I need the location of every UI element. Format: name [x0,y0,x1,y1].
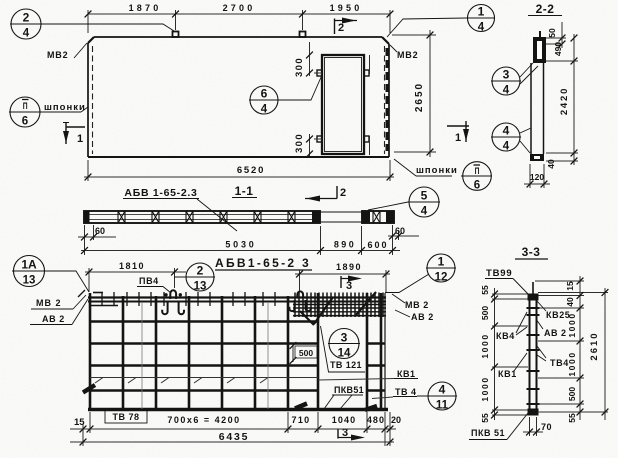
svg-text:4: 4 [261,104,268,116]
svg-text:3: 3 [346,280,352,292]
svg-text:ТВ99: ТВ99 [486,268,512,279]
svg-text:14: 14 [338,348,351,360]
svg-text:4: 4 [503,124,510,138]
svg-text:2: 2 [338,22,344,34]
svg-text:2420: 2420 [559,87,570,115]
svg-text:11: 11 [436,400,449,412]
svg-text:шпонки: шпонки [44,102,86,113]
svg-text:1950: 1950 [330,3,363,13]
svg-text:40: 40 [546,159,556,169]
svg-text:5: 5 [421,189,428,203]
svg-text:4: 4 [503,141,510,153]
svg-text:АБВ1-65-2 3: АБВ1-65-2 3 [215,256,311,270]
svg-text:1: 1 [478,5,485,19]
svg-text:1-1: 1-1 [235,184,254,198]
svg-text:АВ 2: АВ 2 [42,314,65,324]
svg-text:710: 710 [292,415,311,425]
svg-text:МВ 2: МВ 2 [36,298,62,308]
svg-text:1810: 1810 [119,261,145,271]
svg-text:АВ 2: АВ 2 [544,328,567,338]
svg-text:АБВ 1-65-2.3: АБВ 1-65-2.3 [124,187,197,199]
svg-text:55: 55 [480,413,490,423]
svg-text:60: 60 [395,226,405,236]
svg-text:1: 1 [77,133,83,145]
svg-text:1000: 1000 [480,333,490,358]
svg-text:2700: 2700 [223,3,256,13]
svg-text:2: 2 [23,11,30,25]
svg-text:55: 55 [567,413,577,423]
svg-text:1040: 1040 [332,415,356,425]
svg-text:890: 890 [334,240,356,250]
svg-text:1А: 1А [21,258,37,272]
svg-text:1: 1 [455,132,461,144]
svg-text:15: 15 [565,281,575,291]
svg-text:6520: 6520 [237,165,265,176]
svg-text:6: 6 [22,116,28,128]
svg-text:П: П [23,101,28,111]
svg-text:500: 500 [299,348,313,358]
svg-text:480: 480 [367,415,385,425]
svg-text:700х6 = 4200: 700х6 = 4200 [167,415,240,425]
svg-text:3: 3 [341,331,348,345]
svg-text:500: 500 [567,387,577,401]
svg-text:КВ25: КВ25 [546,310,570,320]
svg-text:6: 6 [261,87,268,101]
svg-text:ТВ4: ТВ4 [550,358,569,368]
svg-text:4: 4 [23,28,30,40]
svg-text:70: 70 [541,422,552,432]
svg-text:6435: 6435 [219,431,250,443]
svg-text:1000: 1000 [480,376,490,401]
svg-text:12: 12 [435,272,448,284]
svg-text:55: 55 [480,285,490,295]
svg-text:40: 40 [565,297,575,307]
svg-text:ПВ4: ПВ4 [139,276,159,286]
svg-text:КВ4: КВ4 [496,331,515,341]
svg-text:4: 4 [439,383,446,397]
svg-text:1: 1 [438,255,445,269]
svg-text:МВ2: МВ2 [47,50,68,60]
svg-text:4: 4 [478,22,485,34]
svg-text:300: 300 [294,133,305,153]
svg-text:6: 6 [474,180,480,192]
svg-text:МВ 2: МВ 2 [405,300,429,310]
svg-text:МВ2: МВ2 [397,50,418,60]
svg-text:20: 20 [391,415,401,425]
svg-text:3: 3 [503,68,510,82]
svg-text:АВ 2: АВ 2 [411,312,434,322]
svg-text:2: 2 [197,264,204,278]
svg-text:КВ1: КВ1 [397,369,416,379]
svg-text:13: 13 [194,281,207,293]
svg-text:15: 15 [74,417,85,428]
svg-text:5030: 5030 [225,240,256,250]
svg-text:2650: 2650 [414,82,425,112]
svg-text:300: 300 [294,57,305,77]
svg-text:4: 4 [421,206,428,218]
svg-text:ТВ 4: ТВ 4 [395,387,417,397]
svg-text:50: 50 [547,28,557,38]
svg-text:3-3: 3-3 [522,245,541,259]
svg-text:1890: 1890 [336,262,362,272]
svg-text:шпонки: шпонки [416,165,458,176]
svg-text:П: П [475,166,480,176]
svg-text:600: 600 [367,240,388,250]
svg-text:500: 500 [480,306,490,320]
svg-text:490: 490 [553,42,563,56]
svg-text:2: 2 [340,187,346,199]
svg-text:ТВ 121: ТВ 121 [330,360,362,370]
svg-text:13: 13 [23,275,36,287]
svg-text:ТВ 78: ТВ 78 [112,412,139,422]
svg-text:1870: 1870 [129,3,162,13]
svg-text:ПКВ51: ПКВ51 [334,385,364,395]
svg-text:2610: 2610 [589,331,600,360]
svg-text:4: 4 [503,85,510,97]
svg-text:120: 120 [530,172,544,182]
svg-text:60: 60 [95,226,105,236]
svg-text:2-2: 2-2 [536,2,555,16]
svg-text:ПКВ 51: ПКВ 51 [471,428,505,438]
